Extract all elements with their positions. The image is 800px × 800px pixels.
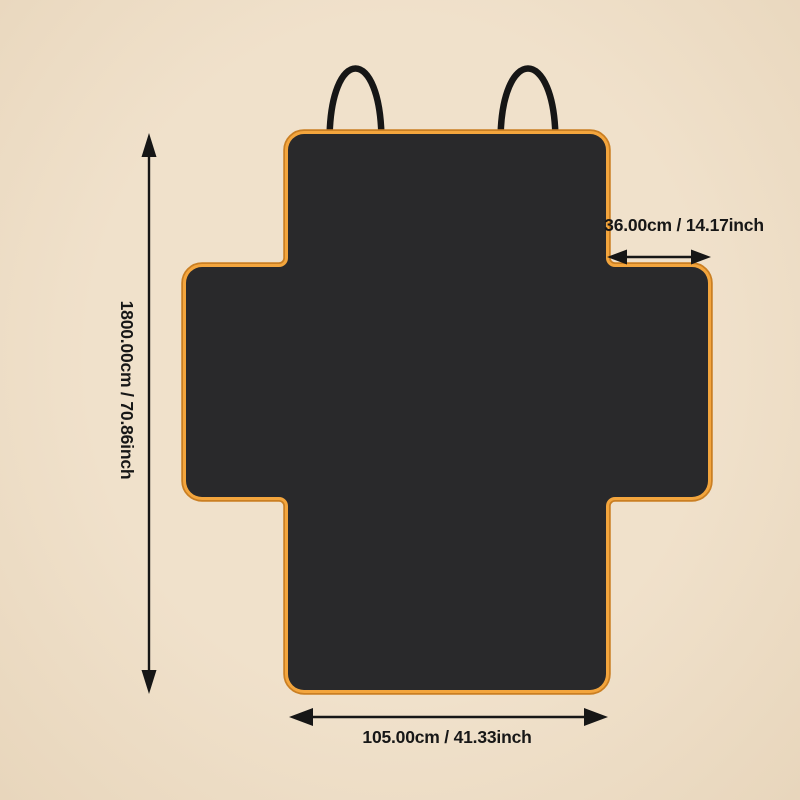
arrow-head-left-icon — [289, 708, 313, 726]
arrow-head-up-icon — [142, 133, 157, 157]
height-dimension-arrow — [142, 133, 157, 694]
seat-width-dimension-label: 105.00cm / 41.33inch — [362, 727, 531, 748]
seat-width-dimension-arrow — [289, 708, 608, 726]
flap-width-dimension-label: 36.00cm / 14.17inch — [604, 215, 764, 236]
arrow-head-down-icon — [142, 670, 157, 694]
arrow-head-right-icon — [584, 708, 608, 726]
arrow-head-right-icon — [691, 250, 711, 265]
product-dimension-diagram: 1800.00cm / 70.86inch 36.00cm / 14.17inc… — [0, 0, 800, 800]
height-dimension-label: 1800.00cm / 70.86inch — [116, 301, 137, 480]
